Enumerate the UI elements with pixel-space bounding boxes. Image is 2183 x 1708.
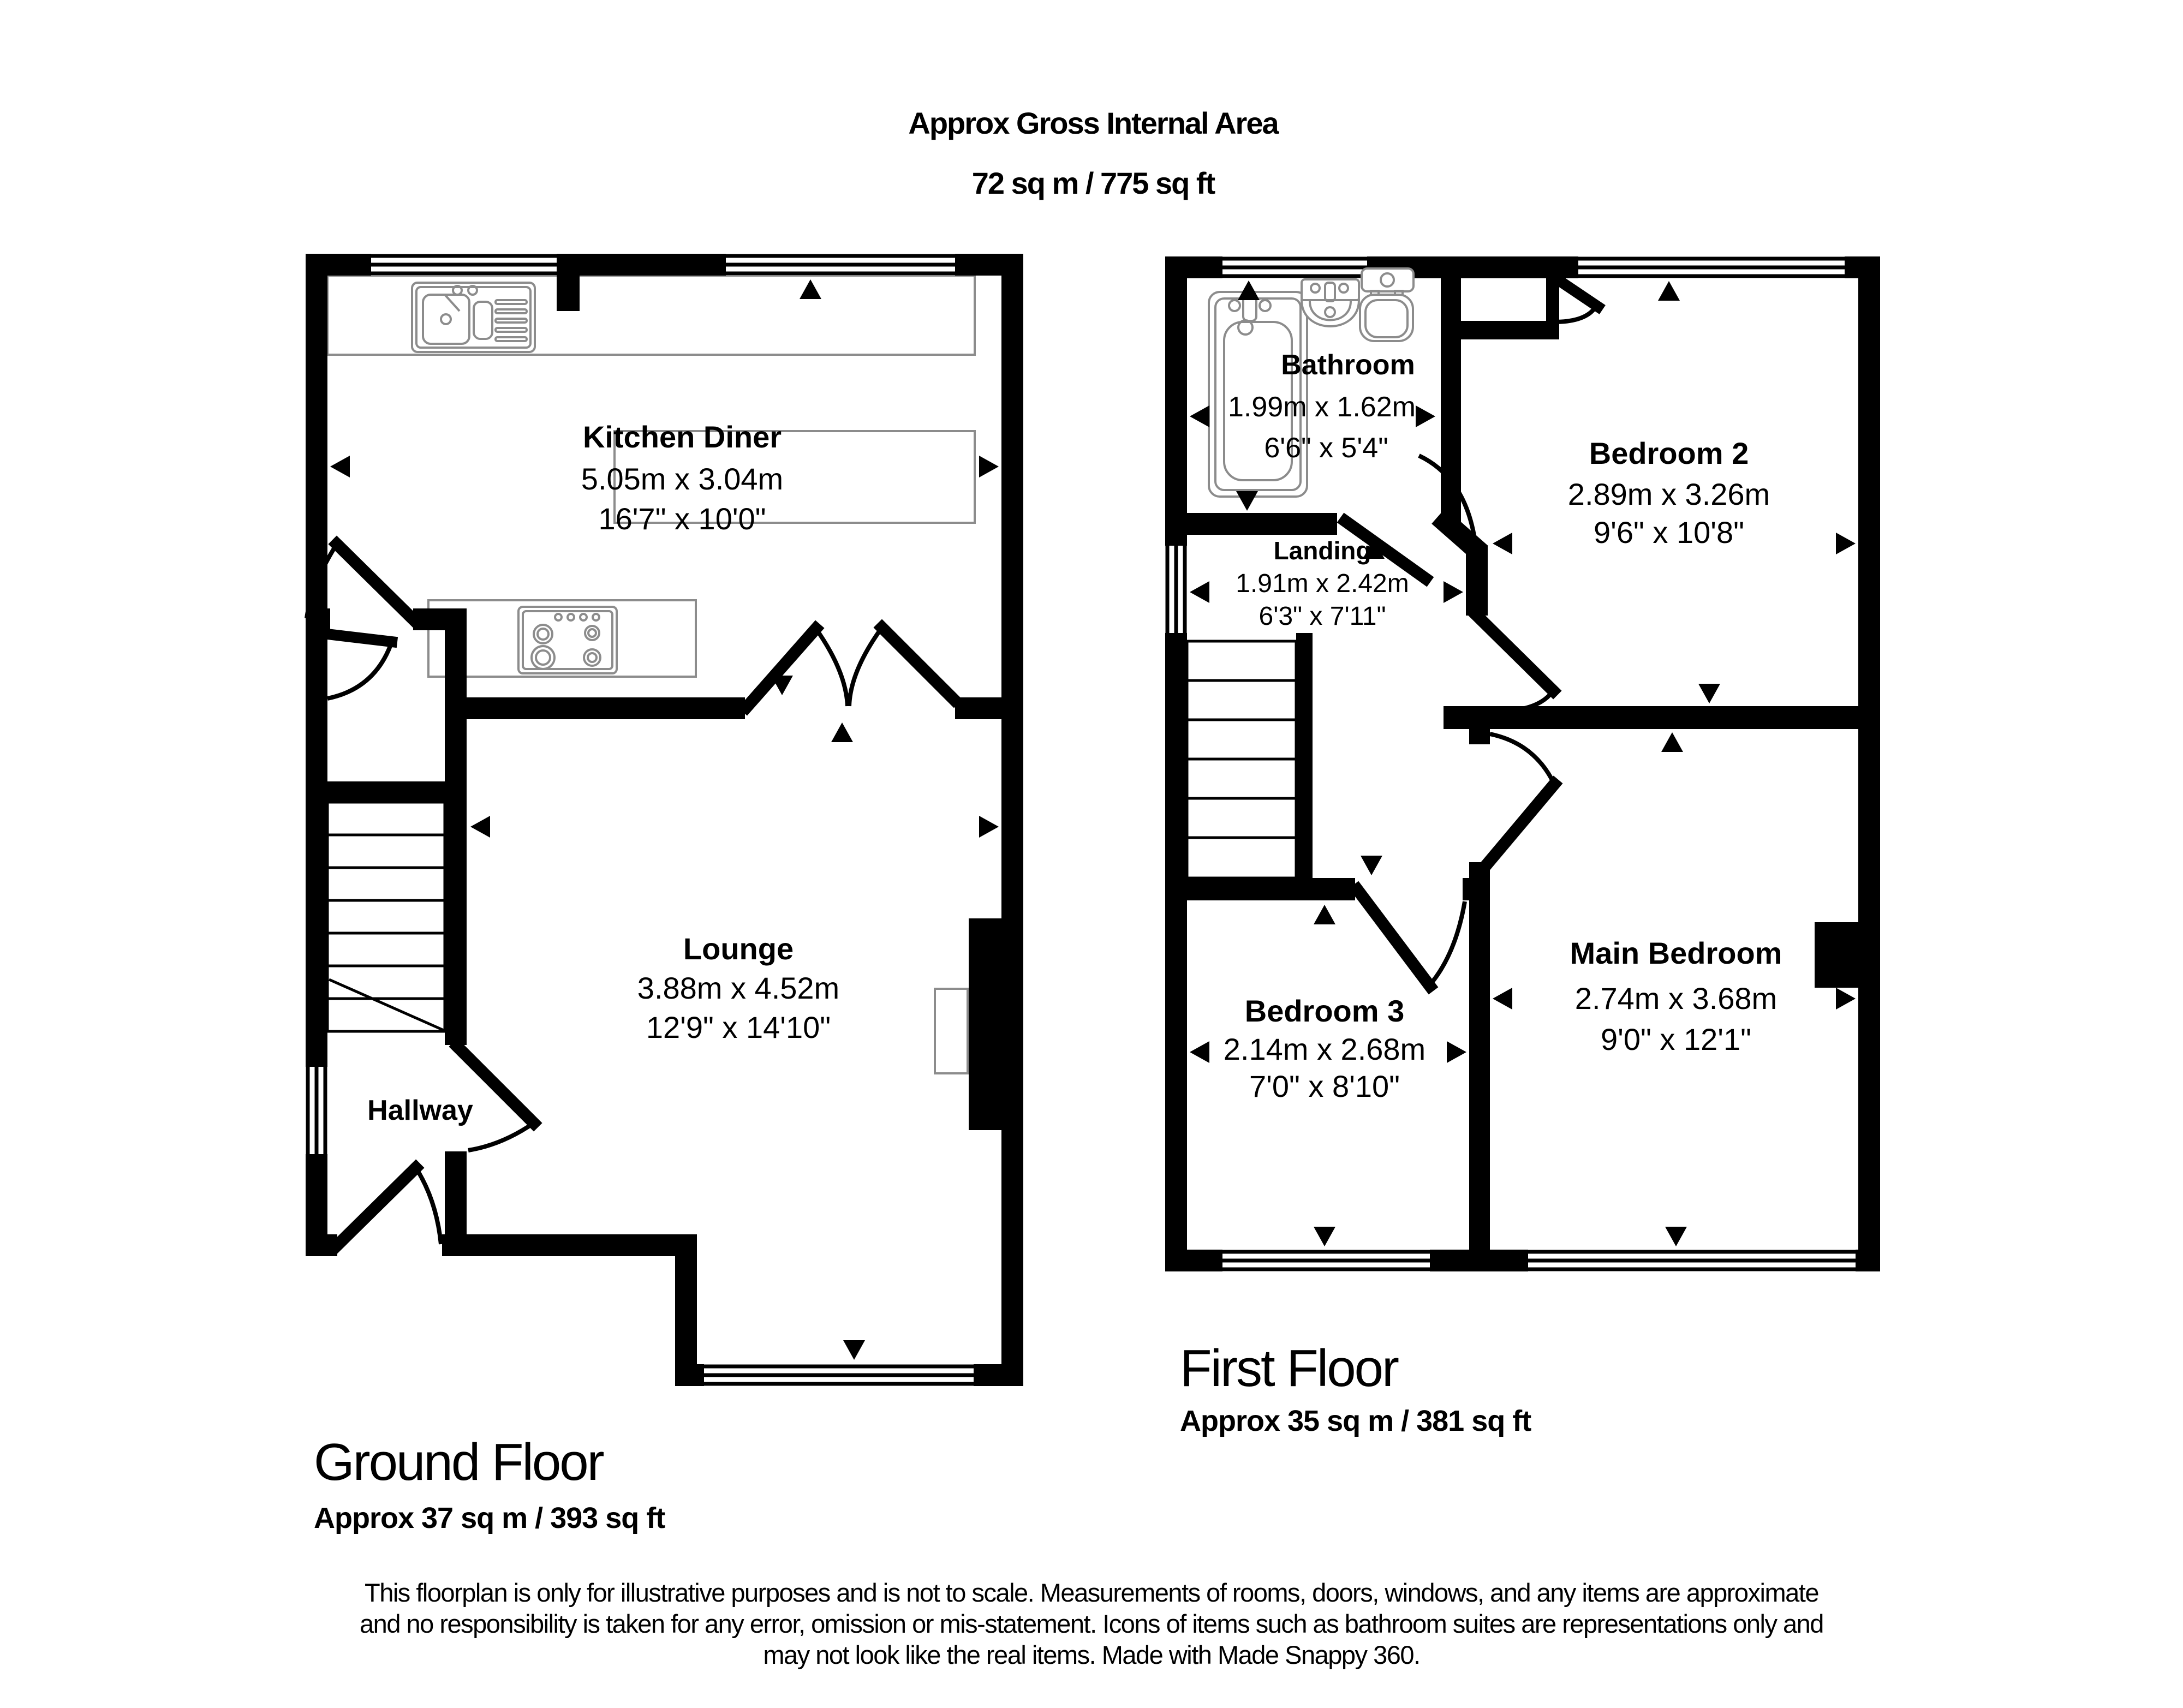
room-label-bedroom3: Bedroom 3 2.14m x 2.68m 7'0" x 8'10" [1224, 994, 1425, 1103]
arrow-right-icon [1836, 988, 1856, 1010]
arrow-up-icon [1661, 732, 1683, 752]
door-swing [1357, 889, 1465, 986]
disclaimer-line: and no responsibility is taken for any e… [360, 1609, 1823, 1638]
ground-floor-caption: Ground Floor Approx 37 sq m / 393 sq ft [314, 1433, 665, 1534]
room-metric: 2.74m x 3.68m [1575, 981, 1777, 1016]
staircase-first [1187, 641, 1296, 878]
room-name: Lounge [683, 931, 794, 966]
ground-floor-plan: Kitchen Diner 5.05m x 3.04m 16'7" x 10'0… [306, 254, 1023, 1386]
header-area: 72 sq m / 775 sq ft [972, 166, 1215, 200]
room-imperial: 12'9" x 14'10" [646, 1010, 831, 1044]
room-metric: 5.05m x 3.04m [581, 462, 783, 496]
arrow-down-icon [1236, 491, 1258, 511]
disclaimer-line: may not look like the real items. Made w… [763, 1640, 1419, 1669]
arrow-left-icon [330, 456, 350, 477]
arrow-up-icon [1658, 281, 1680, 301]
window [726, 254, 955, 276]
arrow-right-icon [1444, 581, 1463, 603]
window [1528, 1250, 1856, 1271]
arrow-down-icon [1361, 856, 1382, 875]
arrow-down-icon [1314, 1227, 1335, 1246]
floorplan-canvas: Approx Gross Internal Area 72 sq m / 775… [0, 0, 2183, 1708]
room-label-main-bedroom: Main Bedroom 2.74m x 3.68m 9'0" x 12'1" [1570, 936, 1782, 1056]
arrow-left-icon [1190, 405, 1209, 427]
window [704, 1364, 974, 1386]
window [1222, 256, 1367, 278]
window [306, 1067, 327, 1154]
arrow-right-icon [1447, 1041, 1466, 1063]
disclaimer-line: This floorplan is only for illustrative … [365, 1578, 1818, 1607]
window [1222, 1250, 1430, 1271]
room-imperial: 6'6" x 5'4" [1264, 432, 1388, 464]
room-label-lounge: Lounge 3.88m x 4.52m 12'9" x 14'10" [637, 931, 839, 1044]
arrow-left-icon [1493, 988, 1512, 1010]
arrow-right-icon [1416, 405, 1435, 427]
arrow-down-icon [1665, 1227, 1687, 1246]
front-door-swing [337, 1168, 441, 1245]
arrow-right-icon [979, 456, 999, 477]
room-metric: 3.88m x 4.52m [637, 971, 839, 1005]
window [1165, 546, 1187, 633]
arrow-right-icon [1836, 533, 1856, 554]
hob-icon [518, 607, 617, 673]
arrow-left-icon [1190, 581, 1209, 603]
header-title: Approx Gross Internal Area [908, 106, 1279, 140]
arrow-left-icon [470, 816, 490, 838]
fireplace-hearth-icon [935, 989, 968, 1073]
arrow-left-icon [1190, 1041, 1209, 1063]
room-name: Kitchen Diner [583, 420, 782, 454]
room-name: Hallway [367, 1095, 473, 1126]
arrow-right-icon [979, 816, 999, 838]
caption-title: Ground Floor [314, 1433, 604, 1491]
wash-basin-icon [1302, 279, 1359, 326]
caption-area: Approx 35 sq m / 381 sq ft [1180, 1405, 1531, 1437]
arrow-up-icon [1314, 905, 1335, 924]
room-imperial: 9'6" x 10'8" [1594, 515, 1744, 550]
room-name: Main Bedroom [1570, 936, 1782, 970]
room-metric: 2.89m x 3.26m [1568, 477, 1770, 511]
room-imperial: 16'7" x 10'0" [598, 501, 766, 536]
room-label-hallway: Hallway [367, 1095, 473, 1126]
arrow-up-icon [831, 722, 853, 742]
arrow-down-icon [771, 676, 793, 695]
disclaimer: This floorplan is only for illustrative … [360, 1578, 1823, 1669]
toilet-icon [1360, 268, 1413, 341]
caption-title: First Floor [1180, 1339, 1399, 1398]
room-label-kitchen-diner: Kitchen Diner 5.05m x 3.04m 16'7" x 10'0… [581, 420, 783, 536]
arrow-down-icon [843, 1340, 865, 1360]
room-metric: 2.14m x 2.68m [1224, 1032, 1425, 1066]
window [1578, 256, 1845, 278]
staircase-ground [327, 802, 445, 1031]
door-swing [1480, 734, 1554, 873]
room-name: Bedroom 2 [1589, 436, 1749, 470]
arrow-up-icon [1238, 280, 1260, 300]
window [371, 254, 557, 276]
room-metric: 1.99m x 1.62m [1228, 391, 1416, 423]
chimney-breast [1815, 922, 1858, 988]
first-floor-caption: First Floor Approx 35 sq m / 381 sq ft [1180, 1339, 1531, 1437]
arrow-left-icon [1493, 533, 1512, 554]
arrow-down-icon [1698, 684, 1720, 703]
header: Approx Gross Internal Area 72 sq m / 775… [908, 106, 1279, 200]
chimney-breast [969, 918, 1001, 1130]
room-metric: 1.91m x 2.42m [1236, 569, 1409, 598]
room-name: Bedroom 3 [1245, 994, 1405, 1028]
first-floor-plan: Bathroom 1.99m x 1.62m 6'6" x 5'4" Landi… [1165, 256, 1880, 1271]
caption-area: Approx 37 sq m / 393 sq ft [314, 1502, 665, 1534]
floorplan-page: Approx Gross Internal Area 72 sq m / 775… [0, 0, 2183, 1708]
room-name: Bathroom [1281, 349, 1415, 381]
room-name: Landing [1274, 536, 1371, 565]
door-swing [1477, 616, 1553, 710]
room-imperial: 7'0" x 8'10" [1249, 1069, 1400, 1103]
room-label-bedroom2: Bedroom 2 2.89m x 3.26m 9'6" x 10'8" [1568, 436, 1770, 550]
room-imperial: 9'0" x 12'1" [1601, 1022, 1751, 1056]
double-door-swing [747, 628, 954, 707]
kitchen-sink-icon [412, 283, 535, 352]
room-imperial: 6'3" x 7'11" [1259, 602, 1386, 631]
door-swing [327, 634, 392, 698]
